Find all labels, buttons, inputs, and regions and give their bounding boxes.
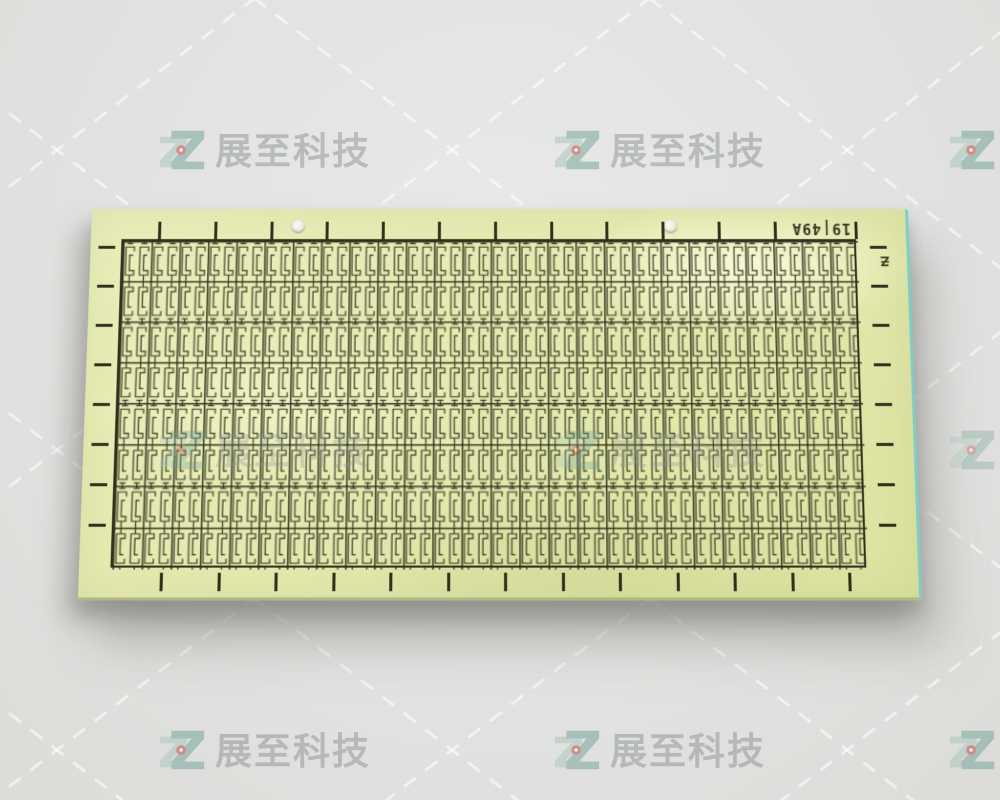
calibration-mark-bottom [217,573,220,591]
calibration-mark-right [876,443,893,446]
calibration-mark-top [214,222,217,239]
calibration-mark-right [874,363,891,366]
calibration-mark-bottom [159,573,163,591]
calibration-mark-right [878,483,895,486]
calibration-mark-bottom [619,573,622,591]
calibration-mark-top [158,222,161,239]
calibration-mark-bottom [733,573,736,591]
calibration-mark-top [662,222,665,239]
calibration-mark-left [97,285,114,288]
calibration-mark-bottom [274,573,277,591]
calibration-mark-bottom [389,573,392,591]
calibration-mark-top [854,222,858,239]
calibration-mark-left [98,246,115,249]
circuit-pattern-grid [112,241,868,570]
calibration-mark-bottom [447,573,450,591]
tooling-hole [291,220,305,234]
calibration-mark-top [438,222,441,239]
substrate-board: 19|49A Ƶ [78,209,922,600]
panel-letter-marking: Ƶ [880,253,890,270]
calibration-mark-left [91,443,108,446]
calibration-mark-bottom [791,573,795,591]
calibration-mark-left [93,403,110,406]
calibration-mark-left [90,483,107,486]
calibration-mark-bottom [676,573,679,591]
serial-marking: 19|49A [791,220,851,237]
calibration-mark-right [875,403,892,406]
calibration-mark-top [326,222,329,239]
calibration-mark-top [270,222,273,239]
calibration-mark-bottom [504,573,507,591]
calibration-mark-left [94,363,111,366]
calibration-mark-top [494,222,497,239]
calibration-mark-top [606,222,609,239]
calibration-mark-right [872,324,889,327]
calibration-mark-bottom [332,573,335,591]
calibration-mark-right [871,285,888,288]
calibration-mark-left [96,324,113,327]
product-photo-scene: 19|49A Ƶ [0,0,1000,800]
calibration-mark-left [89,524,106,527]
calibration-mark-top [718,222,721,239]
calibration-mark-bottom [561,573,564,591]
circuit-pattern-frame [110,239,866,568]
calibration-mark-bottom [848,573,852,591]
calibration-mark-right [879,524,896,527]
tooling-hole [663,220,677,234]
calibration-mark-top [550,222,553,239]
calibration-mark-top [773,222,776,239]
calibration-mark-right [870,246,887,249]
calibration-mark-top [382,222,385,239]
